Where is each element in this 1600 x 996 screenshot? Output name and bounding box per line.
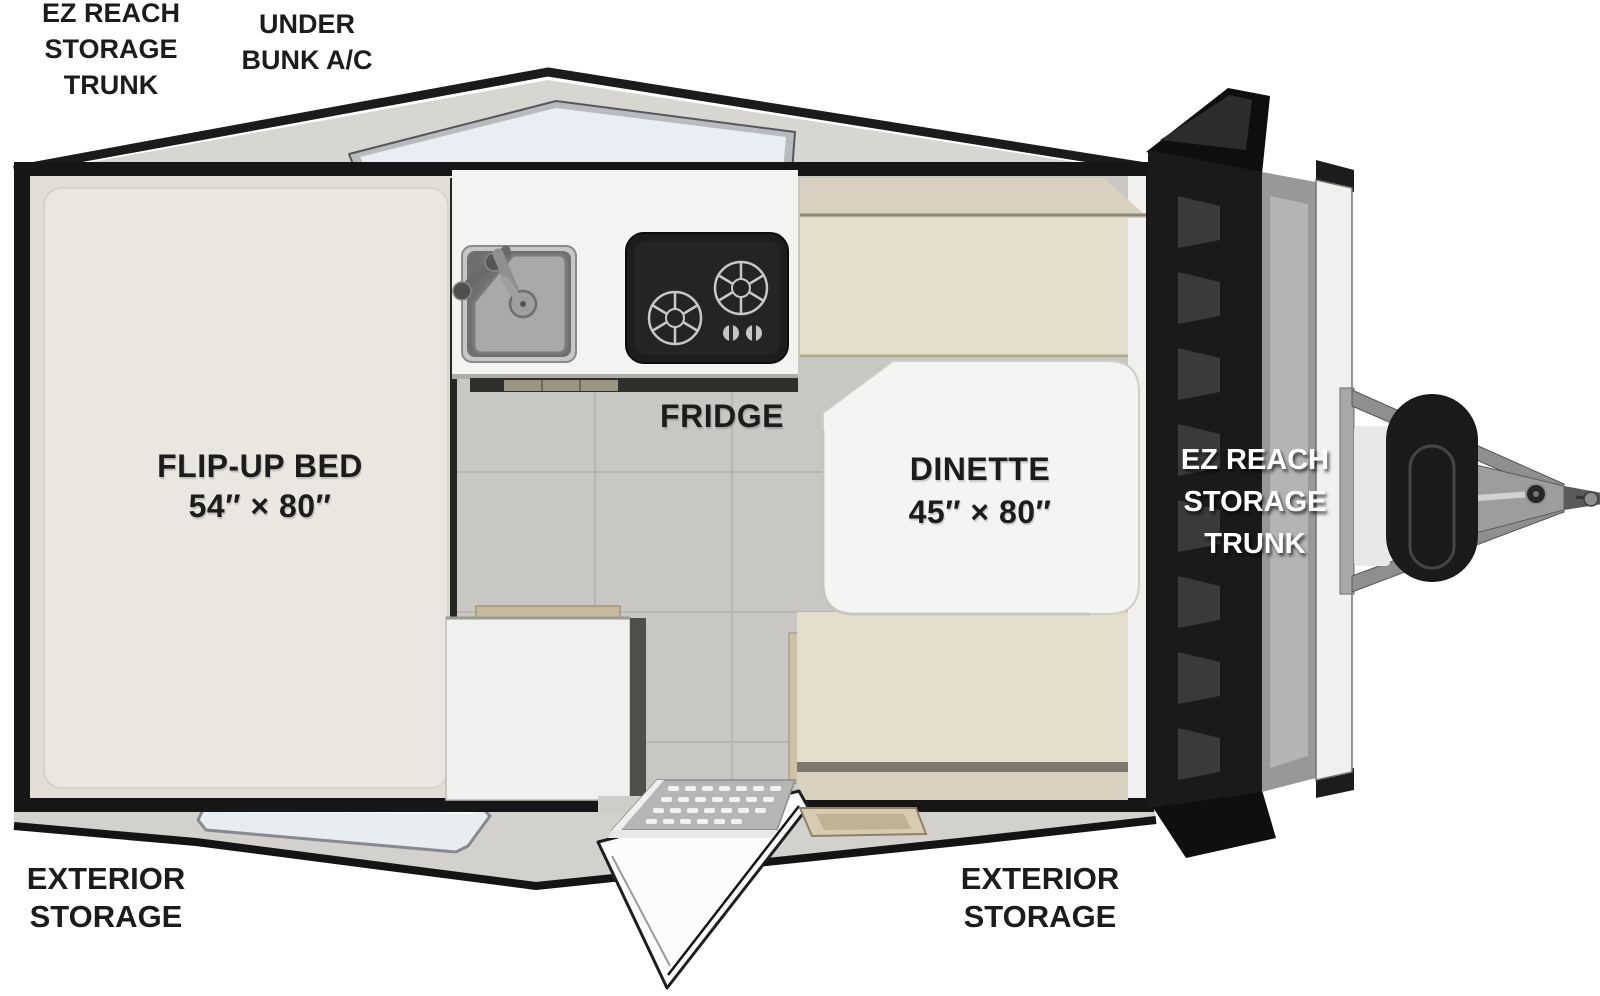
flip-up-bed-label-line2: 54″ × 80″ bbox=[189, 488, 332, 524]
front-trunk-callout-line1: EZ REACH bbox=[42, 0, 180, 28]
cabinet-front bbox=[446, 618, 630, 800]
trunk-label-line1: EZ REACH bbox=[1181, 444, 1329, 476]
dinette-table bbox=[823, 361, 1139, 614]
coupler-ball-knob bbox=[1584, 492, 1598, 506]
exterior-storage-left-line2: STORAGE bbox=[30, 899, 183, 934]
trunk-label-line3: TRUNK bbox=[1204, 528, 1306, 560]
dinette-area: DINETTE 45″ × 80″ bbox=[789, 176, 1146, 800]
trunk-door bbox=[1148, 150, 1262, 808]
kitchen-sink-icon bbox=[453, 246, 576, 362]
step-frame-bottom bbox=[608, 830, 777, 838]
under-counter-drawer bbox=[504, 380, 618, 391]
two-burner-stove-icon bbox=[626, 233, 788, 363]
front-trunk-callout-line2: STORAGE bbox=[44, 34, 177, 64]
flip-up-bed-label-line1: FLIP-UP BED bbox=[157, 448, 363, 484]
trunk-label-line2: STORAGE bbox=[1184, 486, 1327, 518]
ez-reach-storage-trunk: EZ REACH STORAGE TRUNK bbox=[1146, 88, 1354, 858]
floorplan-svg: FLIP-UP BED 54″ × 80″ bbox=[0, 0, 1600, 996]
floorplan-canvas: FLIP-UP BED 54″ × 80″ bbox=[0, 0, 1600, 996]
dinette-seat-top bbox=[800, 218, 1128, 358]
flip-up-bed-area: FLIP-UP BED 54″ × 80″ bbox=[44, 178, 457, 788]
tongue-jack-cover-icon bbox=[1386, 394, 1478, 582]
dinette-cushion-edge bbox=[797, 762, 1128, 772]
front-trunk-callout-line3: TRUNK bbox=[64, 70, 159, 100]
exterior-storage-right-line2: STORAGE bbox=[964, 899, 1117, 934]
dinette-backrest-top bbox=[800, 178, 1146, 218]
under-bunk-ac-label-line2: BUNK A/C bbox=[242, 45, 373, 75]
entry-mat-inner bbox=[816, 814, 911, 830]
dinette-label-line1: DINETTE bbox=[910, 451, 1050, 487]
exterior-storage-left-line1: EXTERIOR bbox=[27, 861, 185, 896]
roof-peak bbox=[14, 72, 1152, 176]
entry-area bbox=[598, 780, 926, 988]
fridge-label: FRIDGE bbox=[660, 398, 784, 434]
dinette-backrest-bottom bbox=[797, 772, 1128, 800]
under-bunk-ac-label-line1: UNDER bbox=[259, 9, 355, 39]
tongue-cross-member bbox=[1340, 388, 1354, 594]
cabinet-side bbox=[630, 618, 646, 800]
bench-side-trim bbox=[789, 633, 798, 783]
dinette-seat-bottom bbox=[797, 612, 1128, 762]
exterior-storage-right-line1: EXTERIOR bbox=[961, 861, 1119, 896]
tongue-step-panel bbox=[1354, 426, 1390, 566]
dinette-label-line2: 45″ × 80″ bbox=[909, 494, 1052, 530]
tongue-hitch-assembly bbox=[1340, 388, 1600, 594]
storage-cabinet bbox=[446, 606, 646, 800]
